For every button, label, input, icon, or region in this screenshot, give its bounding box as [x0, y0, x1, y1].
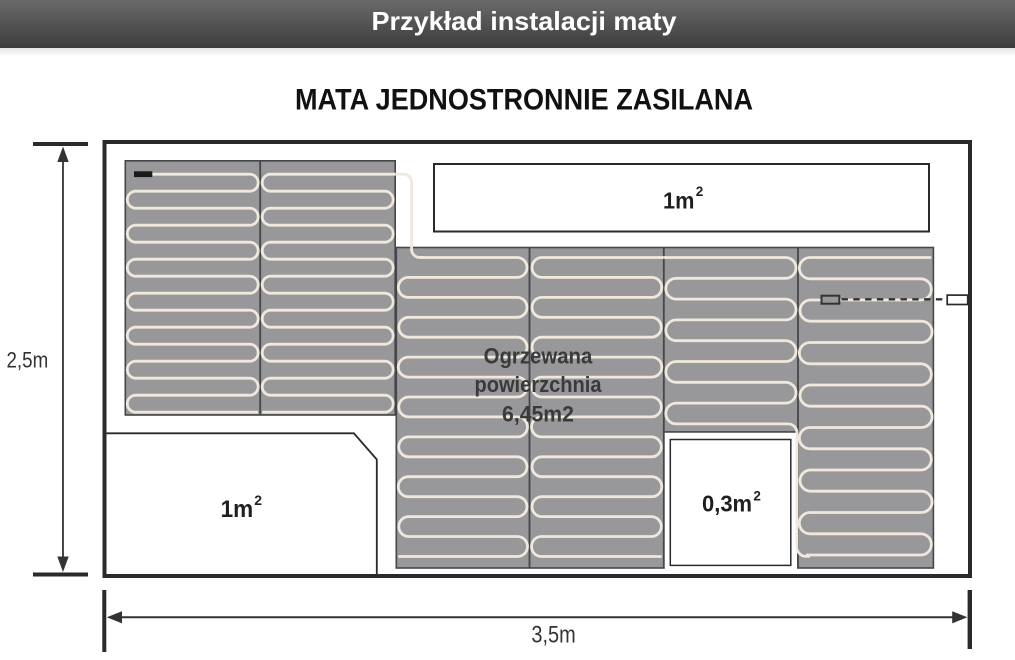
- svg-text:2: 2: [254, 492, 262, 508]
- svg-text:Przykład instalacji maty: Przykład instalacji maty: [372, 6, 678, 36]
- svg-text:1m: 1m: [663, 188, 694, 214]
- svg-text:MATA JEDNOSTRONNIE ZASILANA: MATA JEDNOSTRONNIE ZASILANA: [295, 84, 753, 117]
- svg-text:3,5m: 3,5m: [531, 622, 575, 649]
- svg-text:6,45m2: 6,45m2: [502, 402, 574, 427]
- svg-text:2: 2: [696, 184, 704, 199]
- svg-text:powierzchnia: powierzchnia: [474, 372, 602, 397]
- svg-text:1m: 1m: [221, 496, 254, 523]
- svg-text:2,5m: 2,5m: [7, 347, 49, 372]
- svg-text:Ogrzewana: Ogrzewana: [484, 344, 593, 369]
- svg-text:0,3m: 0,3m: [702, 491, 752, 517]
- svg-text:2: 2: [753, 488, 761, 503]
